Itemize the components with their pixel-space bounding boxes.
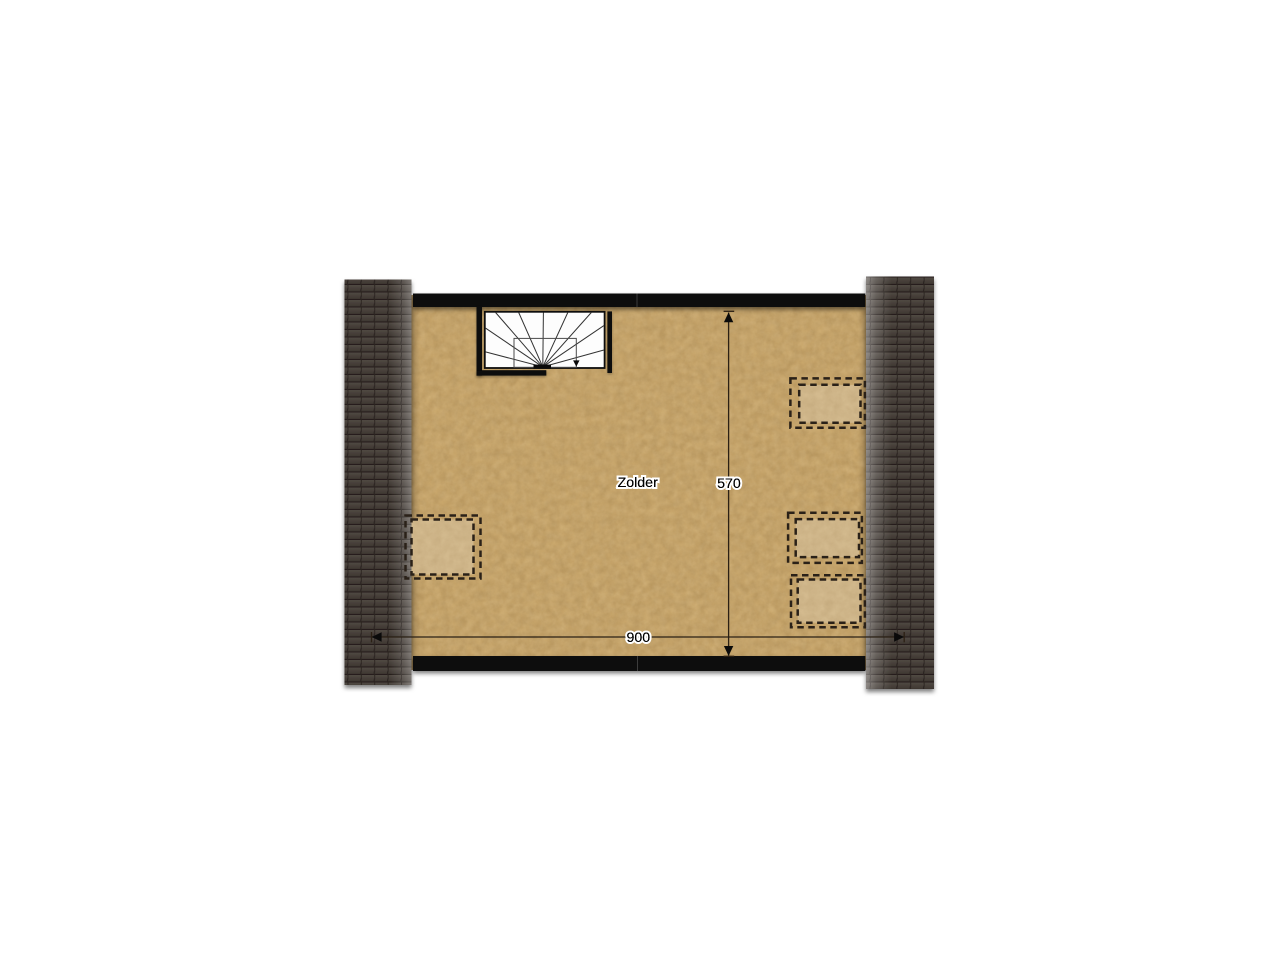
- svg-text:900: 900: [626, 630, 650, 646]
- svg-text:Zolder: Zolder: [618, 475, 658, 491]
- svg-text:570: 570: [717, 476, 741, 492]
